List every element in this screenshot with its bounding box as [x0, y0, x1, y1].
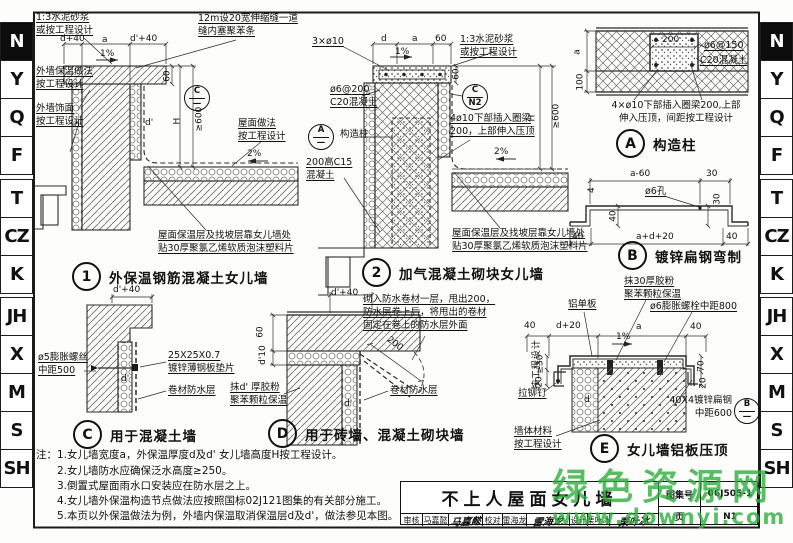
da-dim-100: 100: [575, 73, 587, 90]
dd-membrane-label: 卷材防水层: [390, 385, 438, 398]
de-alum-label: 铝单板: [568, 299, 597, 312]
dc-caption-text: 用于混凝土墙: [110, 425, 197, 445]
de-caption: E 女儿墙铝板压顶: [590, 434, 729, 463]
index-tab: X: [0, 335, 33, 374]
de-ref-b-page: —: [743, 412, 752, 422]
note-item: 1.女儿墙宽度a，外保温厚度d及d' 女儿墙高度H按工程设计。: [57, 447, 342, 462]
atlas-number-label: 图集号: [659, 482, 701, 507]
d2-mortar-label: 1:3水泥砂浆 或按工程设计: [460, 34, 517, 60]
de-dim-20r: 20: [698, 377, 710, 388]
d2-anchor-label: 4ø10下部插入圈梁 200，上部伸入压顶: [450, 113, 535, 139]
atlas-sheet: { "sidebar": { "tabs": ["N","Y","Q","F",…: [0, 0, 793, 543]
d2-column-ref-page: —: [317, 138, 326, 148]
da-mesh-label: ø6@150: [704, 40, 744, 53]
d2-ref-page: N2: [468, 98, 481, 108]
de-dim-d20: d+20: [556, 320, 581, 332]
index-tab: Y: [0, 60, 33, 99]
review-signature-text: 马嘉懿: [449, 512, 482, 529]
dd-dim-60: 60: [255, 326, 267, 337]
db-caption: B 镀锌扁钢弯制: [618, 241, 742, 270]
de-dim-d: d: [584, 394, 590, 406]
index-tab: F: [760, 136, 793, 175]
d1-slope-top: 1%: [100, 48, 114, 60]
index-tab: Y: [760, 60, 793, 99]
index-tab: Q: [760, 98, 793, 137]
check-label: 校对: [483, 514, 503, 526]
design-signature: 栗叶冰: [610, 514, 659, 526]
da-dim-200: 200: [662, 34, 679, 46]
index-tab: S: [0, 411, 33, 450]
index-tab: K: [0, 255, 33, 294]
check-name: 雷海龙: [503, 514, 527, 526]
da-caption-letter: A: [616, 129, 645, 158]
d2-caption-text: 加气混凝土砌块女儿墙: [399, 263, 544, 283]
d1-ref-letter: C: [189, 87, 205, 98]
d2-slope-top: 1%: [395, 46, 409, 58]
dc-shim-label: 25X25X0.7 镀锌薄钢板垫片: [168, 350, 235, 376]
d1-slope-roof: 2%: [247, 148, 261, 160]
dc-membrane-label: 卷材防水层: [168, 385, 216, 398]
d2-dim-top-mid: a: [412, 33, 418, 45]
atlas-number: 06J505-1: [701, 482, 759, 507]
index-tab: K: [760, 255, 793, 294]
de-ref-b-letter: B: [739, 400, 755, 411]
dd-note: 砌入防水卷材一层，甩出200， 防水层卷上后，将甩出的卷材 固定在卷上的防水层外…: [363, 294, 495, 332]
de-wall-material-label: 墙体材料 按工程设计: [514, 426, 562, 452]
dd-plaster-label: 抹d' 厚胶粉 聚苯颗粒保温: [230, 382, 287, 408]
de-caption-letter: E: [590, 434, 619, 463]
sheet-title: 不上人屋面女儿墙: [401, 482, 659, 514]
d1-dim-top-left: d+40: [60, 33, 85, 45]
dc-dim-top: d'+40: [113, 284, 140, 296]
da-concrete-label: C20混凝土: [700, 55, 747, 68]
check-signature: 雷海龙: [527, 514, 570, 526]
title-block: 不上人屋面女儿墙 审核 马嘉懿 马嘉懿 校对 雷海龙 雷海龙 设计 栗叶冰 栗叶…: [400, 481, 758, 525]
db-dim-a60: a-60: [630, 168, 650, 180]
notes-prefix: 注：: [36, 447, 57, 462]
index-tab: X: [760, 335, 793, 374]
d2-rebar-label: 3×ø10: [312, 36, 344, 49]
de-dim-40l: 40: [524, 320, 535, 332]
de-ref-b-bubble: B —: [734, 398, 760, 424]
dc-caption: C 用于混凝土墙: [73, 420, 197, 449]
d2-dim-h: H: [526, 115, 538, 122]
d1-dim-top-right: d'+40: [130, 33, 157, 45]
index-tab: CZ: [0, 217, 33, 256]
de-bolt-label: ø6膨胀螺栓中距800: [650, 301, 737, 314]
de-slope: 1%: [616, 331, 630, 343]
design-signature-text: 栗叶冰: [618, 512, 651, 529]
d2-foam-label: 屋面保温层及找坡层靠女儿墙处 贴30厚聚氯乙烯软质泡沫塑料片: [452, 228, 588, 254]
db-dim-40l: 40: [572, 231, 583, 243]
d1-dim-coping: 60: [162, 70, 174, 81]
dc-bolt-label: ø5膨胀螺丝 中距500: [38, 352, 88, 378]
index-tab: M: [760, 373, 793, 412]
da-dim-a: a: [572, 49, 584, 55]
d2-column-ref-letter: A: [313, 126, 329, 137]
check-signature-text: 雷海龙: [532, 512, 565, 529]
db-dim-30t: 30: [706, 168, 717, 180]
d1-foam-label: 屋面保温层及找坡层靠女儿墙处 贴30厚聚氯乙烯软质泡沫塑料片: [158, 230, 294, 256]
review-name: 马嘉懿: [423, 514, 449, 526]
index-tab: N: [0, 22, 33, 61]
index-tab: M: [0, 373, 33, 412]
note-item: 4.女儿墙外保温构造节点做法应按照国标02J121图集的有关部分施工。: [57, 493, 387, 508]
index-tab: Q: [0, 98, 33, 137]
d1-ref-page: —: [193, 99, 202, 109]
dc-caption-letter: C: [73, 420, 102, 449]
d1-caption-number: 1: [72, 262, 101, 291]
d2-column-label: 构造柱: [340, 129, 369, 142]
de-caption-text: 女儿墙铝板压顶: [627, 439, 729, 459]
db-dim-40v: 40: [608, 210, 620, 221]
index-tab: T: [760, 179, 793, 218]
d1-ref-bubble: C —: [184, 85, 210, 111]
d2-dim-min-h: ≥600: [550, 104, 562, 129]
d2-column-ref-bubble: A —: [308, 124, 334, 150]
dd-dim-d10: d'10: [257, 345, 269, 365]
da-caption: A 构造柱: [616, 129, 697, 158]
index-tab: SH: [760, 449, 793, 488]
dd-caption-text: 用于砖墙、混凝土砌块墙: [305, 424, 465, 444]
de-dim-70: 70: [696, 360, 708, 371]
note-item: 3.倒置式屋面雨水口安装应在防水层之上。: [57, 478, 256, 493]
de-dim-40r: 40: [690, 321, 701, 333]
index-tab: N: [760, 22, 793, 61]
page-label: 页: [659, 507, 701, 526]
d2-ref-letter: C: [467, 86, 483, 97]
d2-c15-label: 200高C15 混凝土: [306, 157, 352, 183]
de-plaster-label: 抹30厚胶粉 聚苯颗粒保温: [624, 276, 681, 302]
index-tab: JH: [760, 297, 793, 336]
d2-slope-roof: 2%: [494, 146, 508, 158]
de-rivet-label: 拉铆钉: [518, 388, 547, 401]
d1-caption: 1 外保温钢筋混凝土女儿墙: [72, 262, 269, 291]
d1-wall-insul-label: 外墙保温做法 按工程设计: [36, 66, 93, 92]
d1-dim-d2: d': [145, 117, 153, 129]
db-dim-30v: 30: [712, 193, 724, 204]
dd-dim-top: d'+40: [331, 287, 358, 299]
db-caption-letter: B: [618, 241, 647, 270]
dd-caption-letter: D: [268, 419, 297, 448]
db-dim-4: 4: [586, 187, 598, 193]
index-tab: SH: [0, 449, 33, 488]
index-tab: CZ: [760, 217, 793, 256]
d2-caption-number: 2: [362, 258, 391, 287]
d2-caption: 2 加气混凝土砌块女儿墙: [362, 258, 544, 287]
d2-mesh-label: ø6@200 C20混凝土: [330, 84, 377, 110]
db-hole-label: ø6孔: [645, 186, 666, 199]
design-name: 栗叶冰: [588, 514, 610, 526]
dd-caption: D 用于砖墙、混凝土砌块墙: [268, 419, 465, 448]
de-vtext: 按工程设计: [531, 339, 543, 389]
detail-c-linework: [84, 294, 166, 412]
review-signature: 马嘉懿: [449, 514, 483, 526]
note-item: 5.本页以外保温做法为例，外墙内保温取消保温层d及d'，做法参见本图。: [57, 508, 398, 523]
index-tab: F: [0, 136, 33, 175]
index-tab: JH: [0, 297, 33, 336]
d1-dim-h: H: [171, 118, 183, 125]
dd-dim-d: d': [344, 398, 352, 410]
de-dim-a: a: [636, 321, 642, 333]
db-caption-text: 镀锌扁钢弯制: [655, 246, 742, 266]
d1-roof-label: 屋面做法 按工程设计: [238, 118, 286, 144]
da-caption-text: 构造柱: [653, 134, 697, 154]
d2-dim-top-right: 60: [435, 33, 446, 45]
page-number: N1: [701, 507, 759, 526]
da-note: 4×ø10下部插入圈梁200,上部 伸入压顶，间距按工程设计: [596, 100, 756, 126]
index-tab: S: [760, 411, 793, 450]
de-flat-steel-label: 40X4镀锌扁钢 中距600: [660, 395, 732, 421]
review-label: 审核: [401, 514, 423, 526]
d2-ref-bubble: C N2: [462, 84, 488, 110]
note-item: 2.女儿墙防水应确保泛水高度≥250。: [57, 463, 232, 478]
dc-dim-d: d': [121, 373, 129, 385]
d2-dim-coping: 60: [451, 68, 463, 79]
d1-joint-label: 12m设20宽伸缩缝一道 缝内塞聚苯条: [198, 13, 298, 39]
d1-dim-d: d: [74, 119, 80, 131]
d2-dim-top-left: d: [381, 33, 387, 45]
d1-dim-top-mid: a: [102, 34, 108, 46]
design-label: 设计: [570, 514, 588, 526]
index-tab: T: [0, 179, 33, 218]
